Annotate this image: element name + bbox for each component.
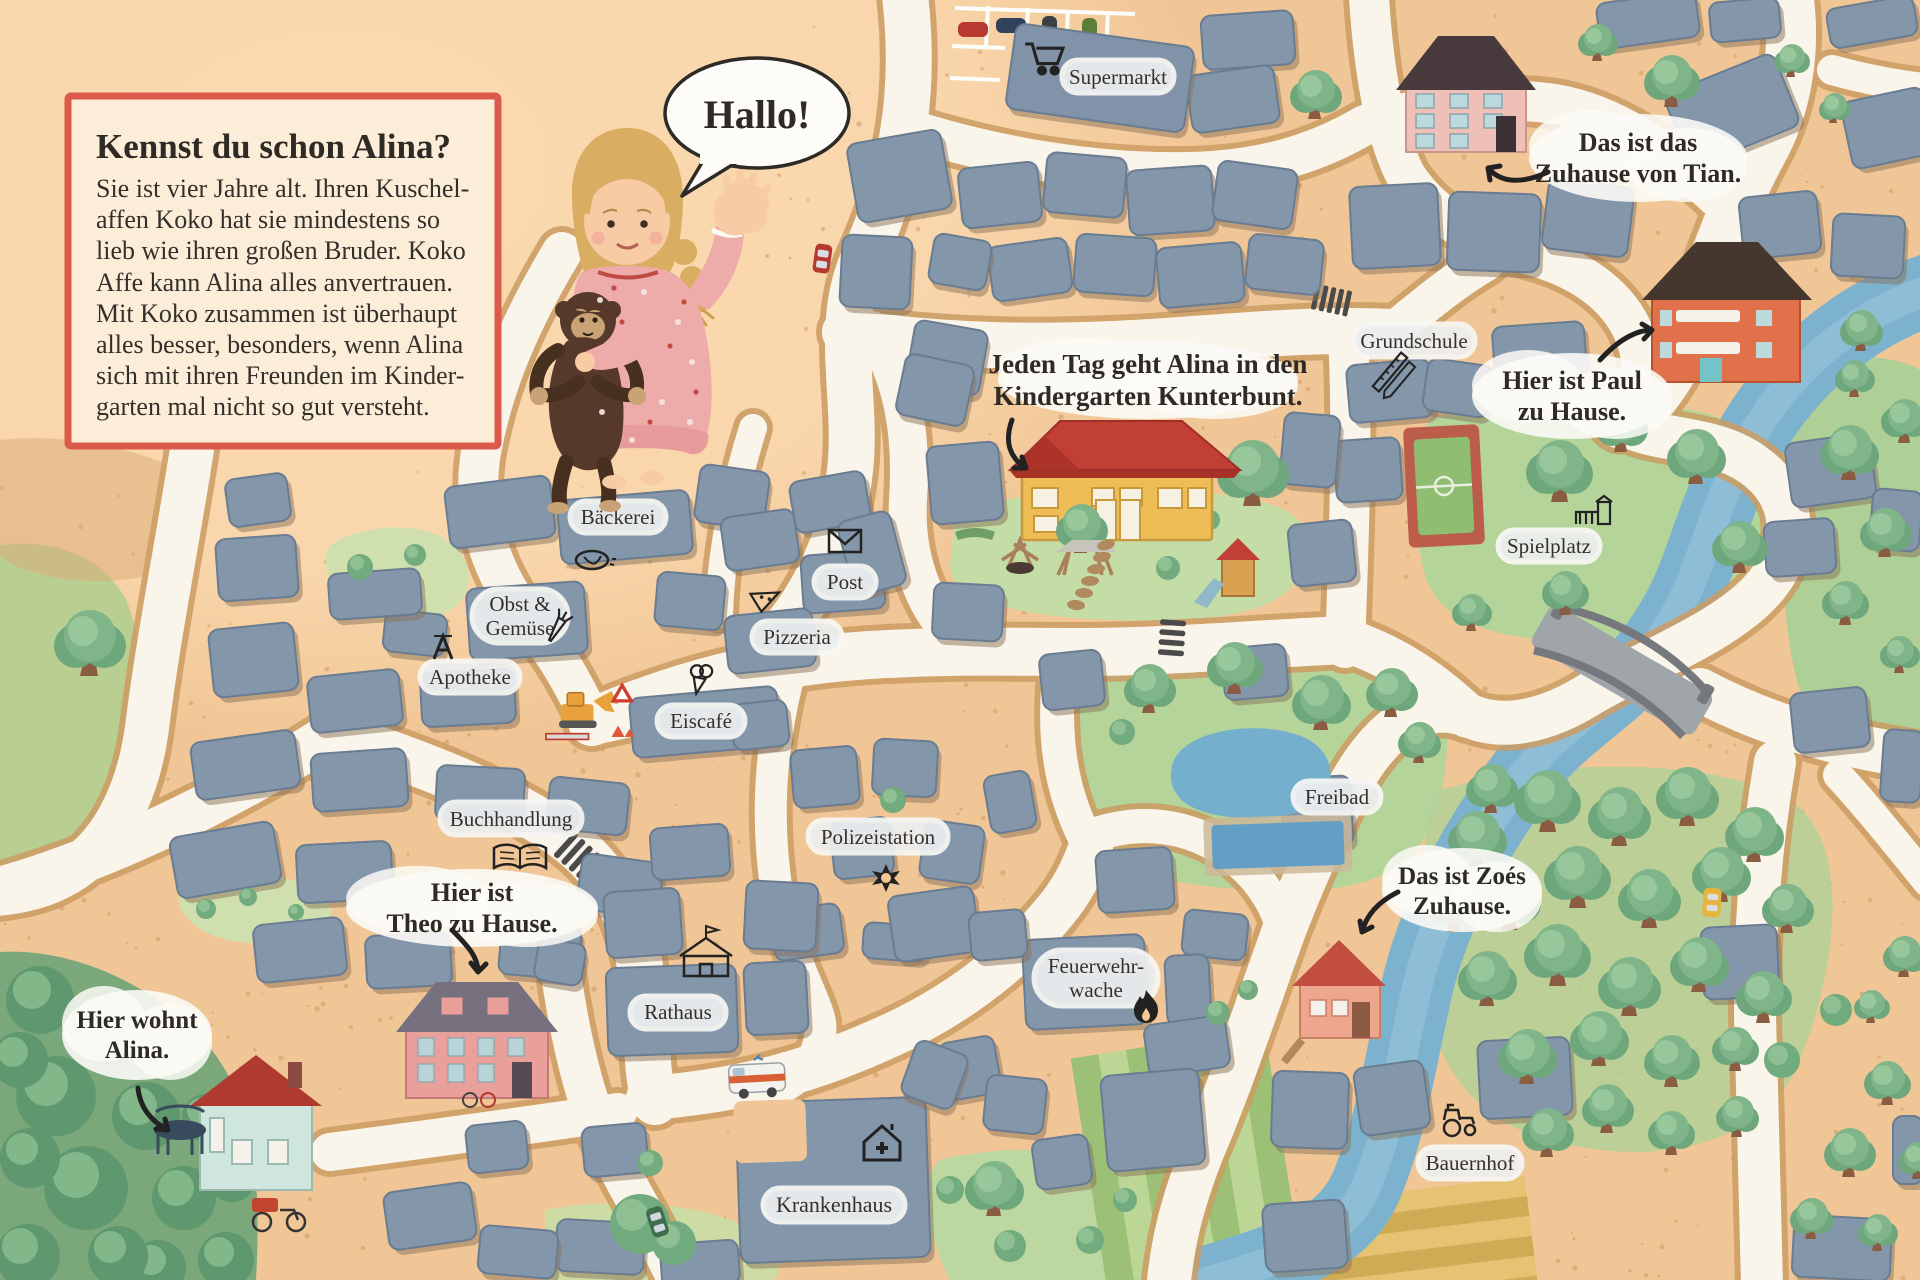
svg-text:sich mit ihren Freunden im Kin: sich mit ihren Freunden im Kinder- — [96, 361, 464, 390]
svg-text:Hier wohnt: Hier wohnt — [76, 1007, 198, 1034]
svg-text:Theo zu Hause.: Theo zu Hause. — [386, 909, 557, 938]
svg-text:wache: wache — [1069, 978, 1123, 1002]
svg-text:zu Hause.: zu Hause. — [1518, 397, 1626, 426]
svg-text:garten mal nicht so gut verste: garten mal nicht so gut versteht. — [96, 392, 430, 421]
svg-text:Post: Post — [827, 570, 863, 594]
svg-text:Hier ist: Hier ist — [431, 878, 514, 907]
svg-text:Affe kann Alina alles anvertra: Affe kann Alina alles anvertrauen. — [96, 268, 453, 297]
svg-text:Mit Koko zusammen ist überhaup: Mit Koko zusammen ist überhaupt — [96, 299, 458, 328]
svg-text:Rathaus: Rathaus — [644, 1000, 712, 1024]
svg-text:Feuerwehr-: Feuerwehr- — [1048, 954, 1144, 978]
svg-text:Buchhandlung: Buchhandlung — [450, 807, 573, 831]
svg-text:Polizeistation: Polizeistation — [821, 825, 936, 849]
svg-text:Spielplatz: Spielplatz — [1507, 534, 1591, 558]
svg-text:Obst &: Obst & — [489, 592, 550, 616]
svg-text:Das ist das: Das ist das — [1579, 128, 1697, 157]
svg-text:Supermarkt: Supermarkt — [1069, 65, 1167, 89]
svg-text:Zuhause.: Zuhause. — [1413, 893, 1511, 920]
svg-text:Kennst du schon Alina?: Kennst du schon Alina? — [96, 127, 451, 166]
svg-text:Alina.: Alina. — [105, 1037, 170, 1064]
svg-text:affen Koko hat sie mindestens: affen Koko hat sie mindestens so — [96, 205, 440, 234]
svg-text:Apotheke: Apotheke — [429, 665, 511, 689]
svg-text:Freibad: Freibad — [1305, 785, 1370, 809]
svg-text:Pizzeria: Pizzeria — [763, 625, 831, 649]
svg-text:Hier ist Paul: Hier ist Paul — [1502, 366, 1642, 395]
svg-text:Hallo!: Hallo! — [704, 92, 811, 137]
svg-text:Jeden Tag geht Alina in den: Jeden Tag geht Alina in den — [989, 349, 1308, 379]
svg-text:lieb wie ihren großen Bruder.: lieb wie ihren großen Bruder. Koko — [96, 236, 466, 265]
svg-text:Das ist Zoés: Das ist Zoés — [1398, 863, 1526, 890]
svg-text:Zuhause von Tian.: Zuhause von Tian. — [1535, 159, 1741, 188]
svg-text:Grundschule: Grundschule — [1360, 329, 1467, 353]
svg-text:Kindergarten Kunterbunt.: Kindergarten Kunterbunt. — [993, 381, 1302, 411]
svg-text:Krankenhaus: Krankenhaus — [776, 1192, 892, 1217]
svg-text:Bauernhof: Bauernhof — [1426, 1151, 1515, 1175]
svg-text:Sie ist vier Jahre alt. Ihren: Sie ist vier Jahre alt. Ihren Kuschel- — [96, 174, 469, 203]
svg-text:Gemüse: Gemüse — [486, 616, 555, 640]
svg-text:alles besser, besonders, wenn: alles besser, besonders, wenn Alina — [96, 330, 464, 359]
svg-text:Eiscafé: Eiscafé — [670, 709, 732, 733]
